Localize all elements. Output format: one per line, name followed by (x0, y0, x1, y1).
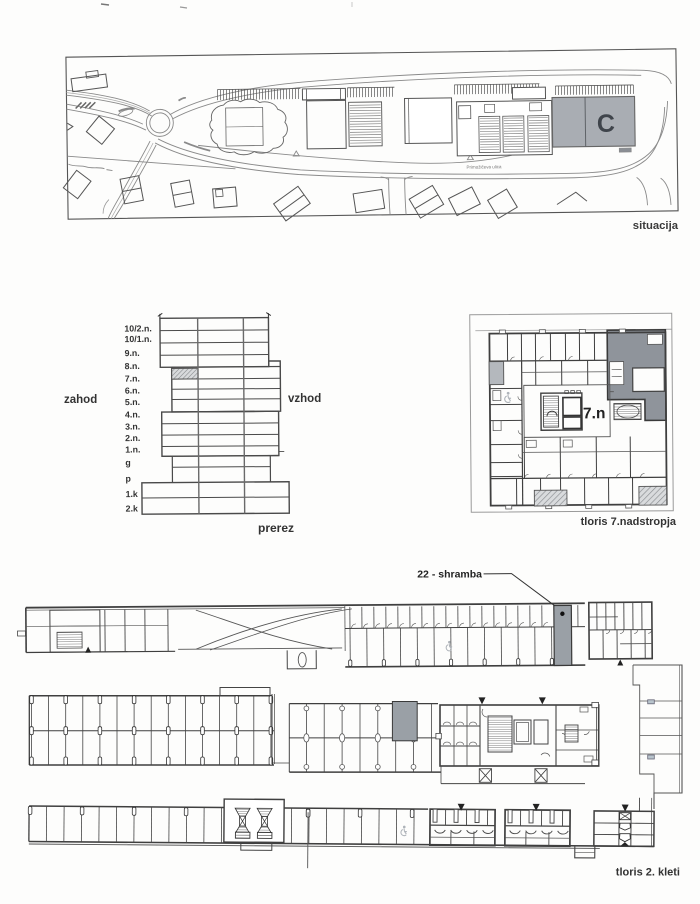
svg-text:22 - shramba: 22 - shramba (417, 569, 482, 581)
svg-text:1.n.: 1.n. (125, 444, 140, 454)
svg-text:tloris 7.nadstropja: tloris 7.nadstropja (581, 516, 677, 528)
svg-text:vzhod: vzhod (288, 393, 321, 405)
svg-text:1.k: 1.k (126, 489, 138, 499)
svg-text:2.k: 2.k (126, 504, 138, 514)
svg-text:9.n.: 9.n. (125, 348, 140, 358)
svg-text:Primožičeva ulica: Primožičeva ulica (466, 164, 502, 169)
svg-text:prerez: prerez (258, 521, 294, 535)
svg-text:situacija: situacija (633, 220, 679, 232)
svg-text:4.n.: 4.n. (125, 409, 140, 419)
svg-text:C: C (597, 110, 615, 138)
svg-text:p: p (125, 474, 131, 484)
svg-text:10/2.n.: 10/2.n. (124, 323, 151, 333)
svg-text:7.n: 7.n (583, 405, 606, 422)
svg-text:3.n.: 3.n. (125, 421, 140, 431)
svg-text:zahod: zahod (64, 394, 97, 406)
svg-text:10/1.n.: 10/1.n. (124, 334, 151, 344)
svg-text:5.n.: 5.n. (125, 397, 140, 407)
svg-text:2.n.: 2.n. (125, 433, 140, 443)
svg-text:tloris 2. kleti: tloris 2. kleti (616, 867, 680, 879)
svg-text:8.n.: 8.n. (125, 361, 140, 371)
svg-text:7.n.: 7.n. (125, 373, 140, 383)
svg-text:g: g (125, 458, 130, 468)
svg-text:6.n.: 6.n. (125, 385, 140, 395)
